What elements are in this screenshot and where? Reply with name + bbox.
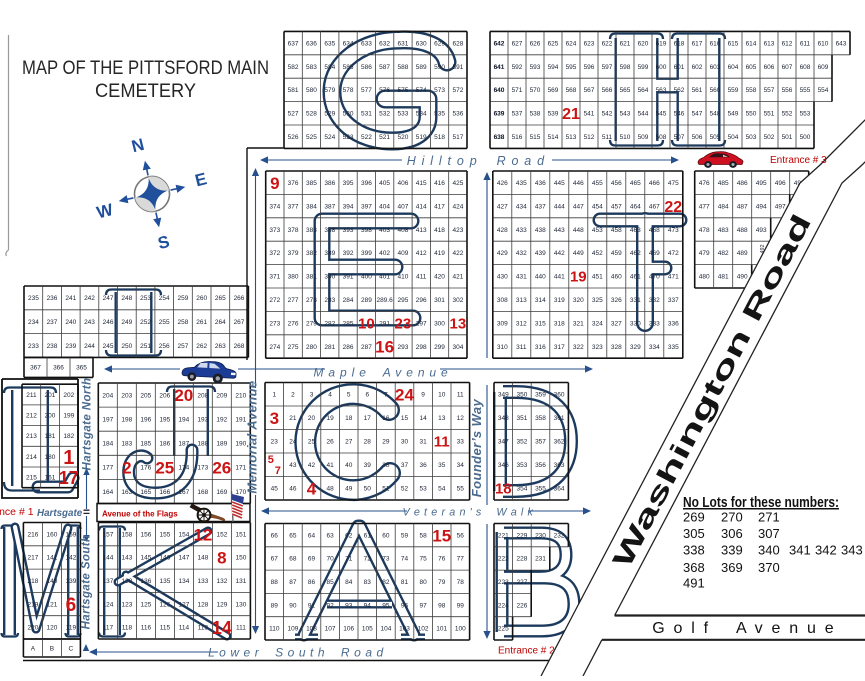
svg-text:243: 243 [84,319,95,326]
svg-text:508: 508 [656,134,667,141]
svg-text:329: 329 [630,344,641,351]
svg-text:592: 592 [512,64,523,71]
svg-text:109: 109 [287,626,298,633]
svg-text:421: 421 [452,274,463,281]
svg-text:237: 237 [47,319,58,326]
svg-text:439: 439 [535,250,546,257]
svg-text:114: 114 [179,625,190,632]
svg-text:593: 593 [530,64,541,71]
svg-text:488: 488 [737,227,748,234]
svg-text:351: 351 [516,415,527,422]
svg-text:135: 135 [159,578,170,585]
svg-text:52: 52 [401,486,409,493]
svg-text:355: 355 [535,486,546,493]
svg-text:497: 497 [775,203,786,210]
svg-text:339: 339 [721,543,743,558]
svg-text:9: 9 [270,174,279,193]
svg-text:194: 194 [178,417,189,424]
svg-text:362: 362 [554,439,565,446]
svg-text:404: 404 [379,203,390,210]
svg-text:461: 461 [630,274,641,281]
svg-text:257: 257 [177,343,188,350]
svg-text:B: B [50,645,54,652]
svg-text:111: 111 [236,625,246,632]
svg-text:281: 281 [324,344,335,351]
svg-text:342: 342 [815,543,837,558]
svg-text:90: 90 [289,602,297,609]
svg-text:621: 621 [620,40,631,47]
svg-text:233: 233 [28,343,39,350]
svg-text:353: 353 [516,462,527,469]
svg-text:370: 370 [758,560,780,575]
svg-text:269: 269 [683,510,705,525]
svg-text:63: 63 [326,532,334,539]
svg-text:245: 245 [103,343,114,350]
svg-text:129: 129 [216,601,227,608]
svg-text:407: 407 [397,203,408,210]
svg-text:116: 116 [141,625,152,632]
svg-text:158: 158 [121,531,132,538]
svg-text:213: 213 [26,433,37,440]
svg-text:467: 467 [649,203,660,210]
svg-text:425: 425 [452,180,463,187]
svg-text:205: 205 [140,392,151,399]
svg-text:511: 511 [602,134,613,141]
svg-text:543: 543 [620,111,631,118]
svg-text:104: 104 [380,626,391,633]
svg-text:147: 147 [178,555,189,562]
svg-text:21: 21 [289,415,297,422]
svg-text:1: 1 [272,392,276,399]
svg-text:58: 58 [419,532,427,539]
svg-text:403: 403 [379,227,390,234]
svg-text:326: 326 [611,297,622,304]
svg-text:406: 406 [397,180,408,187]
svg-text:280: 280 [306,344,317,351]
svg-text:82: 82 [382,579,390,586]
svg-text:235: 235 [28,295,39,302]
svg-text:155: 155 [159,531,170,538]
svg-text:605: 605 [746,64,757,71]
svg-text:55: 55 [457,486,465,493]
svg-text:321: 321 [573,320,584,327]
svg-text:9: 9 [421,392,425,399]
svg-text:144: 144 [102,555,113,562]
svg-text:254: 254 [159,295,170,302]
svg-text:502: 502 [764,134,775,141]
svg-text:487: 487 [737,203,748,210]
svg-text:24: 24 [395,385,414,404]
svg-text:300: 300 [434,320,445,327]
svg-text:91: 91 [308,602,316,609]
svg-text:50: 50 [364,486,372,493]
svg-text:261: 261 [196,319,207,326]
svg-text:148: 148 [197,555,208,562]
svg-text:3: 3 [310,392,314,399]
svg-text:5: 5 [347,392,351,399]
svg-text:313: 313 [516,297,527,304]
svg-text:156: 156 [140,531,151,538]
svg-text:25: 25 [308,439,316,446]
svg-text:639: 639 [494,111,505,118]
svg-text:581: 581 [288,87,299,94]
svg-text:533: 533 [397,111,408,118]
svg-text:67: 67 [271,556,279,563]
svg-text:230: 230 [535,532,546,539]
svg-text:24: 24 [289,439,297,446]
svg-text:201: 201 [45,392,56,399]
svg-text:26: 26 [326,439,334,446]
svg-text:253: 253 [140,295,151,302]
svg-text:458: 458 [611,227,622,234]
svg-text:20: 20 [308,415,316,422]
svg-text:120: 120 [46,625,57,632]
svg-text:23: 23 [395,316,412,333]
svg-text:115: 115 [160,625,171,632]
svg-text:199: 199 [63,413,74,420]
svg-text:98: 98 [438,602,446,609]
svg-text:293: 293 [397,344,408,351]
svg-text:383: 383 [306,227,317,234]
svg-text:448: 448 [573,227,584,234]
svg-text:331: 331 [630,297,641,304]
svg-text:285: 285 [343,320,354,327]
svg-text:535: 535 [434,111,445,118]
svg-text:388: 388 [324,227,335,234]
svg-text:107: 107 [325,626,336,633]
svg-text:524: 524 [324,134,335,141]
svg-text:554: 554 [818,87,829,94]
svg-text:Entrance # 1: Entrance # 1 [0,506,34,518]
svg-text:414: 414 [416,203,427,210]
svg-text:637: 637 [288,40,299,47]
svg-text:442: 442 [554,250,565,257]
svg-text:473: 473 [668,227,679,234]
svg-text:538: 538 [530,111,541,118]
svg-text:248: 248 [121,295,132,302]
svg-text:485: 485 [718,180,729,187]
svg-text:160: 160 [46,531,57,538]
svg-text:623: 623 [584,40,595,47]
svg-text:MAP OF THE PITTSFORD MAIN: MAP OF THE PITTSFORD MAIN [22,58,269,79]
svg-text:337: 337 [668,297,679,304]
svg-text:430: 430 [497,274,508,281]
svg-text:192: 192 [216,417,227,424]
svg-text:263: 263 [215,343,226,350]
svg-text:15: 15 [432,526,451,545]
svg-text:319: 319 [554,297,565,304]
svg-text:608: 608 [800,64,811,71]
svg-text:165: 165 [140,489,151,496]
svg-text:447: 447 [573,203,584,210]
svg-text:484: 484 [718,203,729,210]
svg-text:618: 618 [674,40,685,47]
svg-text:489: 489 [737,250,748,257]
svg-text:367: 367 [30,365,41,372]
svg-text:522: 522 [361,134,372,141]
svg-text:579: 579 [324,87,335,94]
svg-text:186: 186 [159,441,170,448]
svg-text:259: 259 [177,295,188,302]
svg-text:347: 347 [498,439,509,446]
svg-text:419: 419 [434,250,445,257]
svg-text:526: 526 [288,134,299,141]
svg-text:284: 284 [343,297,354,304]
svg-text:574: 574 [416,87,427,94]
svg-text:255: 255 [159,319,170,326]
svg-text:157: 157 [102,531,113,538]
svg-text:507: 507 [674,134,685,141]
svg-text:385: 385 [306,180,317,187]
svg-text:496: 496 [775,180,786,187]
svg-text:630: 630 [416,40,427,47]
svg-text:80: 80 [419,579,427,586]
svg-text:624: 624 [566,40,577,47]
svg-text:183: 183 [121,441,132,448]
svg-text:580: 580 [306,87,317,94]
svg-text:322: 322 [573,344,584,351]
svg-text:556: 556 [782,87,793,94]
svg-text:22: 22 [664,199,682,216]
svg-text:166: 166 [159,489,170,496]
svg-text:415: 415 [416,180,427,187]
svg-text:3: 3 [270,409,279,428]
svg-text:366: 366 [53,365,64,372]
svg-text:632: 632 [379,40,390,47]
svg-text:348: 348 [498,415,509,422]
svg-text:4: 4 [307,479,317,498]
svg-text:42: 42 [308,462,316,469]
svg-text:640: 640 [494,87,505,94]
svg-text:311: 311 [516,344,527,351]
svg-text:14: 14 [212,618,232,638]
svg-text:A: A [31,645,36,652]
svg-text:475: 475 [668,180,679,187]
svg-text:377: 377 [288,203,299,210]
svg-text:478: 478 [699,227,710,234]
svg-text:C: C [69,645,74,652]
svg-text:553: 553 [800,111,811,118]
svg-text:231: 231 [535,556,546,563]
svg-text:188: 188 [197,441,208,448]
svg-text:180: 180 [45,454,56,461]
svg-text:324: 324 [592,320,603,327]
svg-text:18: 18 [495,481,512,498]
svg-text:238: 238 [47,343,58,350]
svg-text:334: 334 [649,344,660,351]
svg-text:546: 546 [674,111,685,118]
svg-text:277: 277 [288,297,299,304]
svg-text:392: 392 [343,250,354,257]
svg-text:195: 195 [159,417,170,424]
svg-text:17: 17 [59,468,79,488]
svg-text:225: 225 [498,626,509,633]
svg-text:204: 204 [102,392,113,399]
svg-text:152: 152 [216,531,227,538]
svg-text:468: 468 [649,227,660,234]
svg-text:74: 74 [401,556,409,563]
svg-text:168: 168 [197,489,208,496]
svg-text:38: 38 [382,462,390,469]
svg-text:627: 627 [512,40,523,47]
svg-text:119: 119 [66,625,77,632]
svg-text:343: 343 [841,543,863,558]
svg-text:40: 40 [345,462,353,469]
svg-text:380: 380 [288,274,299,281]
svg-text:48: 48 [326,486,334,493]
svg-text:228: 228 [516,556,527,563]
svg-text:M a p l e A v e n u e: M a p l e A v e n u e [313,366,448,380]
svg-text:424: 424 [452,203,463,210]
svg-text:529: 529 [324,111,335,118]
svg-text:463: 463 [630,227,641,234]
svg-text:629: 629 [434,40,445,47]
svg-text:96: 96 [401,602,409,609]
svg-text:36: 36 [419,462,427,469]
svg-text:Hartsgate South: Hartsgate South [81,535,93,630]
svg-text:523: 523 [343,134,354,141]
svg-text:177: 177 [102,465,113,472]
svg-text:402: 402 [379,250,390,257]
svg-text:352: 352 [516,439,527,446]
svg-text:363: 363 [554,462,565,469]
svg-text:601: 601 [674,64,685,71]
svg-text:382: 382 [306,250,317,257]
svg-text:87: 87 [289,579,297,586]
svg-text:130: 130 [235,601,246,608]
svg-text:73: 73 [382,556,390,563]
svg-text:229: 229 [516,532,527,539]
svg-text:159: 159 [65,531,76,538]
svg-text:547: 547 [692,111,703,118]
svg-text:70: 70 [326,556,334,563]
svg-text:584: 584 [324,64,335,71]
svg-text:79: 79 [438,579,446,586]
svg-text:423: 423 [452,227,463,234]
svg-text:471: 471 [668,274,679,281]
svg-text:570: 570 [530,87,541,94]
svg-text:106: 106 [343,626,354,633]
svg-text:552: 552 [782,111,793,118]
svg-text:267: 267 [234,319,245,326]
svg-text:29: 29 [382,439,390,446]
svg-text:236: 236 [47,295,58,302]
svg-text:466: 466 [649,180,660,187]
svg-text:557: 557 [764,87,775,94]
svg-text:223: 223 [498,579,509,586]
svg-text:214: 214 [26,454,37,461]
svg-text:12: 12 [193,525,212,544]
svg-text:494: 494 [756,203,767,210]
svg-text:208: 208 [197,392,208,399]
svg-text:397: 397 [361,203,372,210]
svg-text:364: 364 [554,486,565,493]
svg-text:7: 7 [275,465,281,477]
svg-text:441: 441 [554,274,565,281]
svg-text:634: 634 [343,40,354,47]
svg-text:CEMETERY: CEMETERY [95,81,196,102]
svg-text:470: 470 [649,274,660,281]
svg-text:358: 358 [535,415,546,422]
svg-text:64: 64 [308,532,316,539]
svg-text:622: 622 [602,40,613,47]
svg-text:242: 242 [84,295,95,302]
svg-text:477: 477 [699,203,710,210]
svg-text:202: 202 [63,392,74,399]
svg-text:532: 532 [379,111,390,118]
svg-text:479: 479 [699,250,710,257]
svg-text:446: 446 [573,180,584,187]
svg-text:454: 454 [592,203,603,210]
svg-text:398: 398 [361,227,372,234]
svg-text:134: 134 [178,578,189,585]
svg-text:92: 92 [326,602,334,609]
svg-text:88: 88 [271,579,279,586]
svg-text:598: 598 [620,64,631,71]
svg-text:51: 51 [382,486,390,493]
svg-text:102: 102 [418,626,429,633]
svg-text:457: 457 [611,203,622,210]
svg-text:521: 521 [379,134,390,141]
svg-text:417: 417 [434,203,445,210]
svg-text:218: 218 [27,578,38,585]
svg-text:101: 101 [436,626,447,633]
svg-text:244: 244 [84,343,95,350]
svg-text:287: 287 [361,344,372,351]
svg-text:390: 390 [324,274,335,281]
svg-text:164: 164 [102,489,113,496]
svg-text:341: 341 [789,543,811,558]
svg-text:312: 312 [516,320,527,327]
svg-text:99: 99 [457,602,465,609]
svg-text:37: 37 [401,462,409,469]
svg-text:10: 10 [358,316,375,333]
svg-text:564: 564 [638,87,649,94]
svg-text:625: 625 [548,40,559,47]
svg-text:372: 372 [269,250,280,257]
svg-text:572: 572 [452,87,463,94]
svg-text:128: 128 [197,601,208,608]
svg-text:85: 85 [326,579,334,586]
svg-text:289: 289 [361,297,372,304]
svg-text:97: 97 [419,602,427,609]
svg-text:240: 240 [65,319,76,326]
svg-text:141: 141 [46,555,57,562]
svg-text:354: 354 [516,486,527,493]
svg-text:256: 256 [159,343,170,350]
svg-text:455: 455 [592,180,603,187]
svg-text:519: 519 [416,134,427,141]
svg-text:504: 504 [728,134,739,141]
svg-text:534: 534 [416,111,427,118]
svg-text:226: 226 [516,602,527,609]
svg-text:379: 379 [288,250,299,257]
svg-text:642: 642 [494,40,505,47]
svg-text:503: 503 [746,134,757,141]
svg-text:264: 264 [215,319,226,326]
svg-text:378: 378 [288,227,299,234]
svg-text:271: 271 [758,510,780,525]
svg-text:234: 234 [28,319,39,326]
svg-text:103: 103 [399,626,410,633]
svg-text:545: 545 [656,111,667,118]
svg-text:316: 316 [535,344,546,351]
svg-text:93: 93 [345,602,353,609]
svg-text:174: 174 [178,465,189,472]
svg-text:599: 599 [638,64,649,71]
svg-text:251: 251 [140,343,151,350]
svg-text:75: 75 [419,556,427,563]
